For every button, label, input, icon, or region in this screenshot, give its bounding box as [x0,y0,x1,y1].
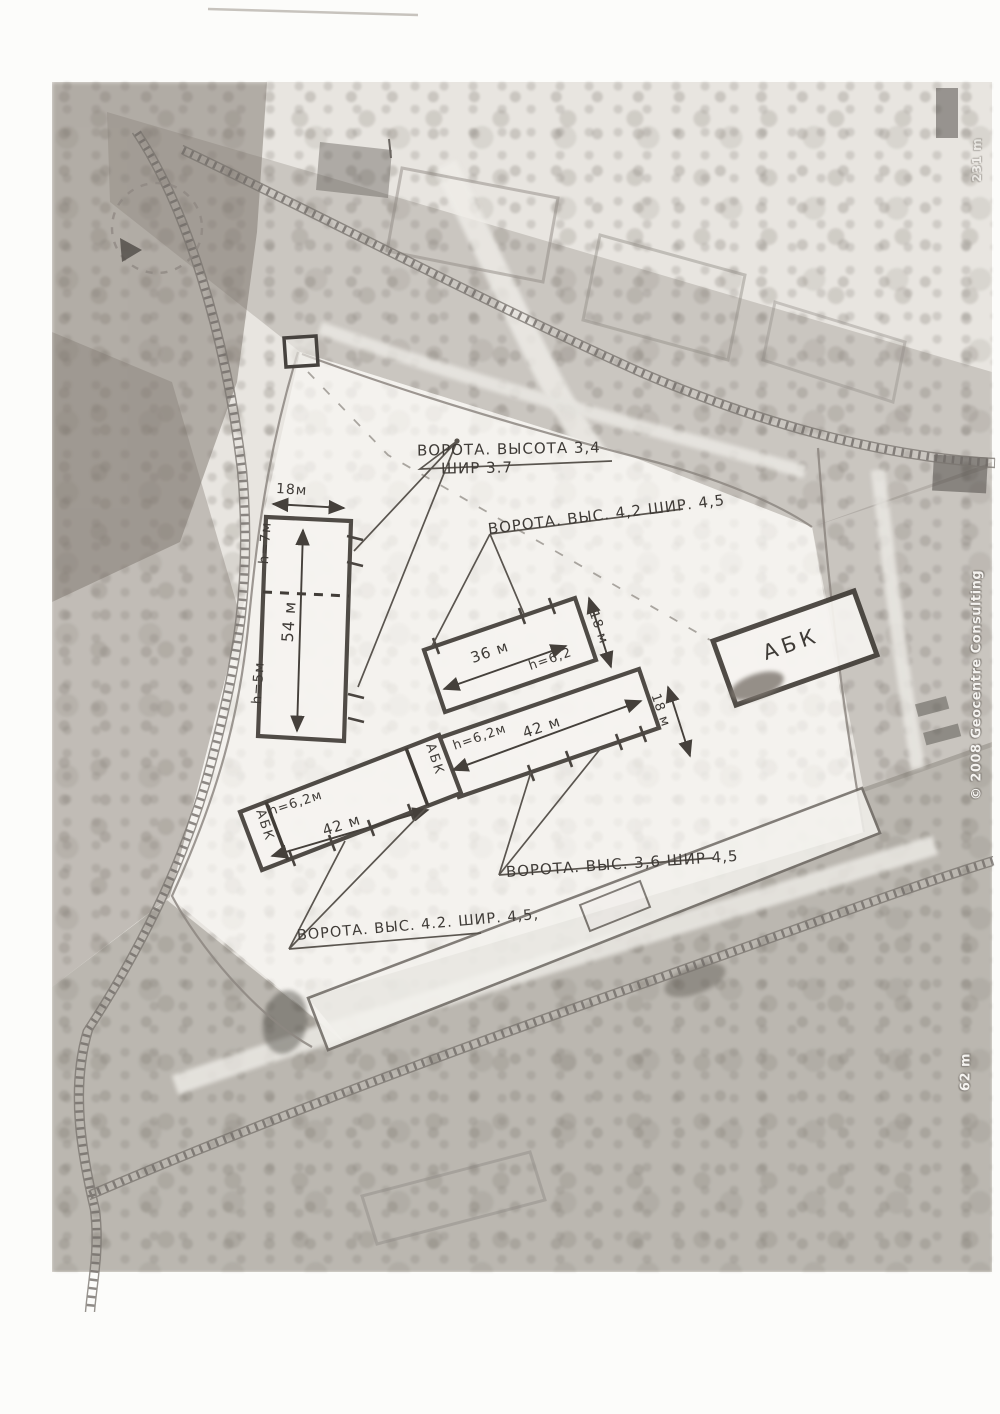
dim-label-54m: 54 м [278,600,300,643]
railway-top [183,146,995,468]
edge-fragment-watermark: 231 m [970,138,984,182]
photo-block-right-2 [915,696,949,717]
photo-building-bottom [362,1152,545,1244]
dim-18m-left [273,504,344,508]
photo-building-outline-2 [583,235,745,360]
railway-bottom [90,857,993,1200]
photo-building-dark [316,142,392,198]
scale-watermark: 62 m [959,1053,974,1091]
road-right [878,470,918,768]
gate-note-top-line2: ШИР 3.7 [441,458,513,477]
photo-block-top-right [936,88,958,138]
photo-building-outline-3 [763,302,905,402]
photo-block-right-3 [923,724,961,746]
height-label-h5: h=5м [249,661,268,705]
road-top-diagonal [445,165,600,462]
sketch-overlay [0,0,1000,1414]
gate-note-top-line1: ВОРОТА. ВЫСОТА 3,4 [417,438,601,459]
copyright-watermark: © 2008 Geocentre Consulting [970,570,985,800]
scan-artifact-top [208,9,418,15]
height-label-h7: h=7м [256,521,275,565]
dim-label-18m-left: 18м [275,481,307,499]
scanned-site-plan-page: { "annotations": { "gate_top_1": "ВОРОТА… [0,0,1000,1414]
gatehouse-square [284,336,318,367]
circle-arrow-marker [120,238,142,262]
